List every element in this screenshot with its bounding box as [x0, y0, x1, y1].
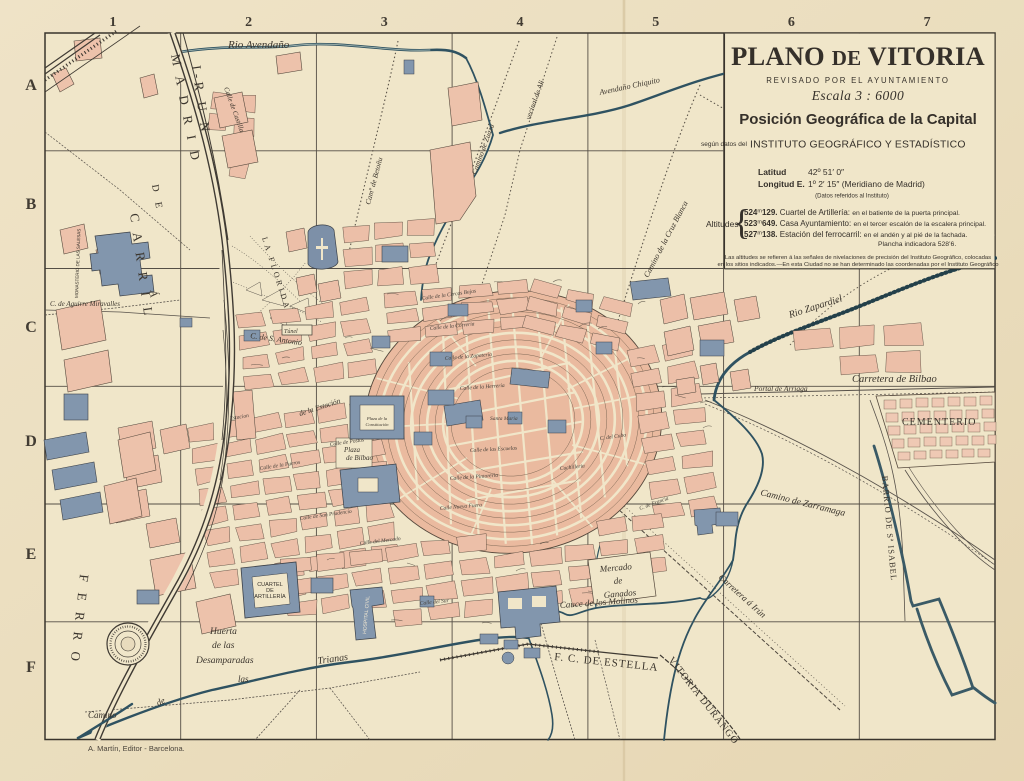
- svg-text:(Datos referidos al Instituto): (Datos referidos al Instituto): [815, 194, 889, 200]
- svg-text:Latitud: Latitud: [758, 167, 786, 177]
- svg-text:Longitud E.: Longitud E.: [758, 179, 805, 189]
- svg-text:D: D: [25, 433, 37, 450]
- svg-text:6: 6: [788, 15, 795, 30]
- svg-text:Huerta: Huerta: [209, 627, 237, 637]
- svg-text:Las altitudes se refieren á la: Las altitudes se refieren á las señales …: [725, 255, 991, 261]
- svg-text:523m649. Casa Ayuntamiento: en: 523m649. Casa Ayuntamiento: en el tercer…: [744, 219, 986, 228]
- svg-text:2: 2: [245, 15, 252, 30]
- svg-text:según datos del: según datos del: [701, 141, 747, 148]
- svg-text:en los sitios indicados.—En es: en los sitios indicados.—En esta Ciudad …: [718, 262, 1000, 268]
- svg-text:Túnel: Túnel: [284, 329, 298, 335]
- svg-text:7: 7: [924, 15, 931, 30]
- svg-text:524m129. Cuartel de Artillería: 524m129. Cuartel de Artillería: en el ba…: [744, 208, 960, 217]
- svg-text:las: las: [238, 674, 249, 684]
- svg-text:INSTITUTO GEOGRÁFICO Y ESTADÍS: INSTITUTO GEOGRÁFICO Y ESTADÍSTICO: [750, 138, 966, 151]
- svg-text:Rio Avendaño: Rio Avendaño: [227, 39, 290, 51]
- svg-text:5: 5: [652, 15, 659, 30]
- svg-text:CEMENTERIO: CEMENTERIO: [902, 417, 976, 428]
- svg-text:Á: Á: [147, 289, 160, 302]
- svg-text:527m138. Estación del ferrocar: 527m138. Estación del ferrocarril: en el…: [744, 230, 967, 239]
- svg-text:1º 2′ 15″ (Meridiano de Madri: 1º 2′ 15″ (Meridiano de Madrid): [808, 179, 925, 189]
- svg-text:B: B: [26, 196, 37, 213]
- svg-text:de Bilbao: de Bilbao: [346, 454, 374, 462]
- svg-text:Plaza de la: Plaza de la: [366, 416, 388, 421]
- svg-text:3: 3: [381, 15, 388, 30]
- svg-text:Plaza: Plaza: [343, 446, 360, 454]
- svg-text:C: C: [25, 319, 37, 336]
- svg-text:ARTILLERÍA: ARTILLERÍA: [254, 593, 286, 600]
- svg-text:Desamparadas: Desamparadas: [195, 656, 254, 666]
- svg-text:REVISADO POR EL AYUNTAMIENTO: REVISADO POR EL AYUNTAMIENTO: [766, 76, 950, 85]
- svg-text:A: A: [25, 77, 37, 94]
- svg-text:42º 51′ 0″: 42º 51′ 0″: [808, 167, 844, 177]
- svg-text:E: E: [26, 546, 37, 563]
- svg-text:1: 1: [109, 15, 116, 30]
- svg-text:Constitución: Constitución: [365, 422, 389, 427]
- svg-text:Camino: Camino: [88, 710, 117, 720]
- svg-text:A. Martín, Editor - Barcelona.: A. Martín, Editor - Barcelona.: [88, 744, 185, 753]
- svg-text:Plancha indicadora 528’6.: Plancha indicadora 528’6.: [878, 241, 956, 248]
- svg-text:F: F: [26, 659, 36, 676]
- svg-text:Posición Geográfica de la Capi: Posición Geográfica de la Capital: [739, 111, 977, 128]
- svg-text:C. de Aguirre Miravalles: C. de Aguirre Miravalles: [50, 300, 120, 308]
- svg-text:Carretera de Bilbao: Carretera de Bilbao: [852, 374, 937, 385]
- svg-text:de las: de las: [212, 641, 235, 651]
- svg-text:de: de: [613, 575, 622, 586]
- svg-text:Santa Maria: Santa Maria: [490, 416, 518, 422]
- svg-text:Portal de Arriaga: Portal de Arriaga: [753, 384, 808, 393]
- svg-text:PLANO DE VITORIA: PLANO DE VITORIA: [731, 41, 985, 71]
- svg-text:4: 4: [517, 15, 524, 30]
- svg-text:Escala 3 : 6000: Escala 3 : 6000: [811, 88, 905, 103]
